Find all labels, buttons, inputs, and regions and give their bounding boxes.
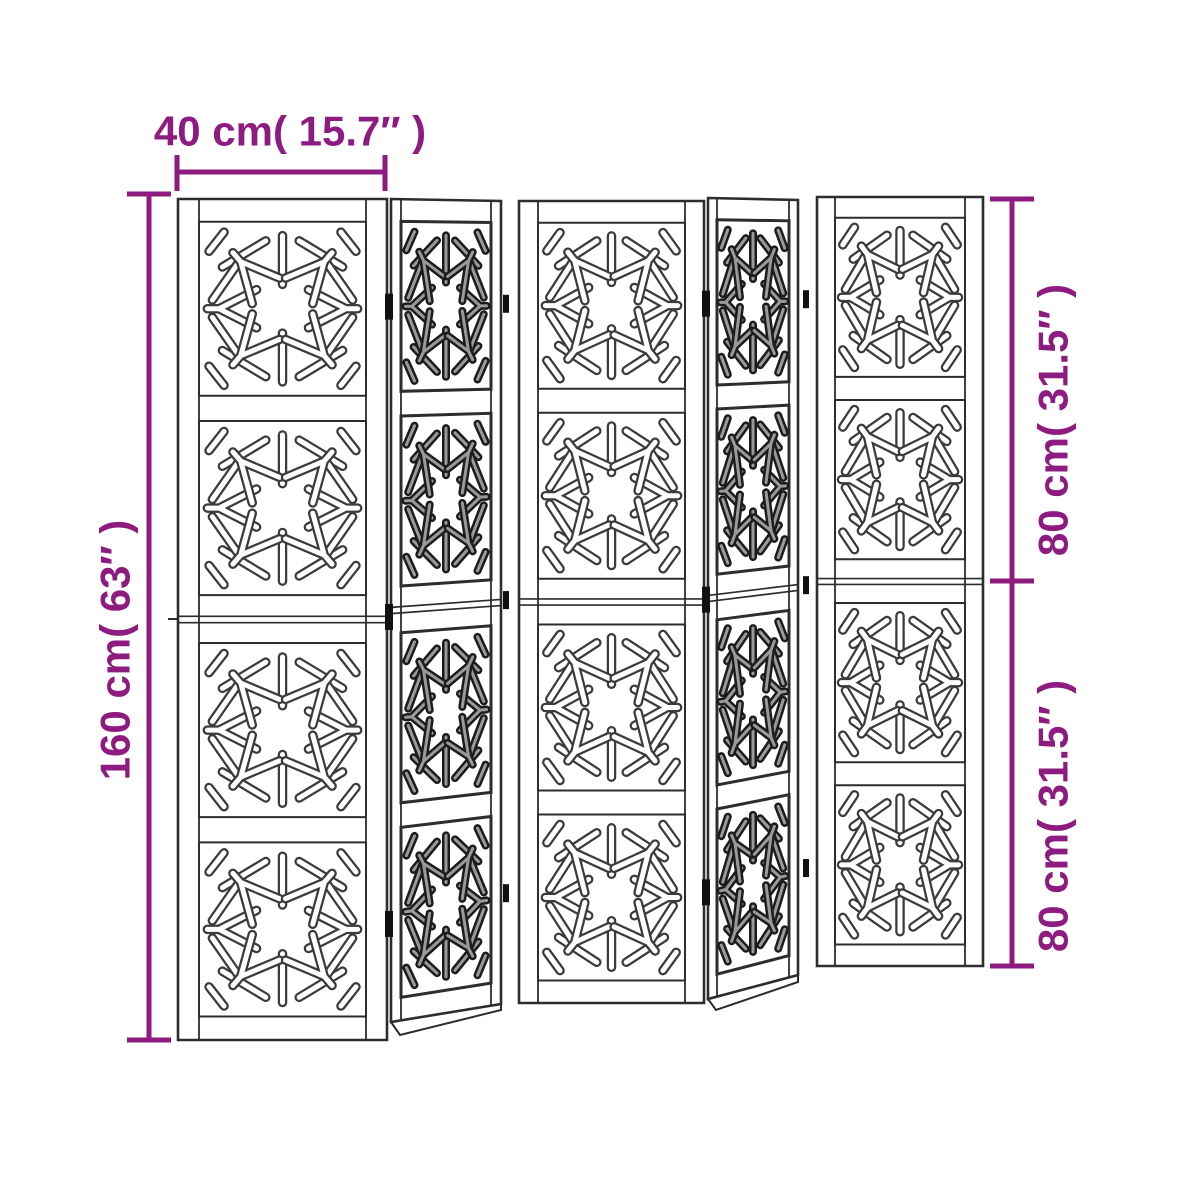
dimension-label-height-left: 160 cm( 63″ ) [92,520,139,781]
hinge [503,591,509,609]
product-dimension-diagram: 40 cm( 15.7″ ) 160 cm( 63″ ) 80 cm( 31.5… [0,0,1200,1200]
hinge [803,859,809,877]
hinge [503,884,509,902]
hinge [385,604,393,630]
room-divider-panel-3 [519,201,704,1003]
dimension-label-height-right-top: 80 cm( 31.5″ ) [1030,284,1077,556]
hinge [803,576,809,594]
hinge [702,291,710,317]
room-divider-panel-2 [391,199,501,1035]
hinge [702,879,710,905]
divider-line-art [127,155,1034,1040]
hinge [385,911,393,937]
hinge [503,295,509,313]
room-divider-panel-5 [817,197,983,966]
room-divider-panel-4 [708,198,798,1010]
hinge [702,587,710,613]
dimension-label-height-right-bottom: 80 cm( 31.5″ ) [1030,680,1077,952]
dimension-label-width-top: 40 cm( 15.7″ ) [154,108,426,155]
hinge [385,294,393,320]
room-divider-panel-1 [178,199,387,1040]
hinge [803,290,809,308]
